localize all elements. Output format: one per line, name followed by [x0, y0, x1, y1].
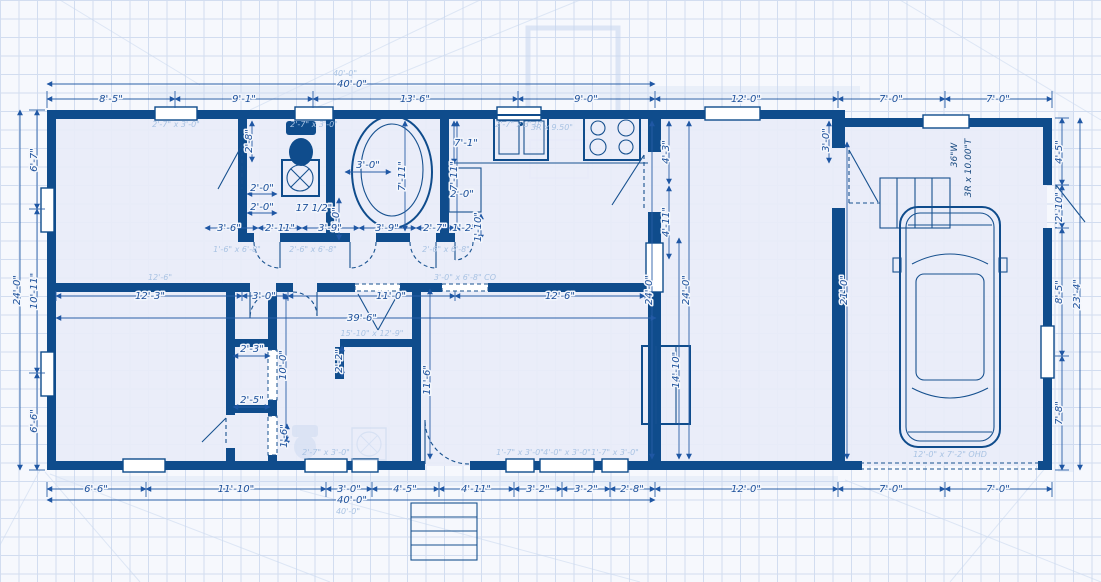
dimension-label: 17 1/2" — [296, 203, 333, 214]
dimension-label: 9'-0" — [574, 94, 598, 105]
dimension-label: 4'-5" — [393, 484, 417, 495]
ghost-room-outline — [528, 28, 618, 116]
window — [540, 459, 594, 472]
dimension-label: 3'-0" — [356, 160, 380, 171]
dimension-label: 10'-0" — [278, 350, 289, 380]
dimension-label: 23'-4" — [1072, 279, 1083, 309]
ghost-wall-band — [56, 476, 838, 486]
dimension-label: 7'-1" — [454, 138, 478, 149]
garage-floor — [837, 122, 1047, 466]
dimension-label: 3'-6" — [217, 223, 241, 234]
dimension-label: 24'-0" — [12, 275, 23, 305]
window — [295, 107, 333, 120]
dimension-label: 2'-8" — [620, 484, 644, 495]
ghost-label: 2'-7" x 3'-0" — [302, 448, 350, 457]
dimension-label: 7'-11" — [449, 161, 460, 191]
dimension-label: 7'-11" — [397, 161, 408, 191]
window — [41, 188, 54, 232]
window — [923, 115, 969, 128]
dimension-label: 3'-2" — [574, 484, 598, 495]
dimension-label: 4'-3" — [661, 140, 672, 164]
dimension-label: 13'-6" — [400, 94, 430, 105]
ghost-label: 3R x 9.50" — [531, 123, 573, 132]
closet-door-opening — [268, 416, 277, 455]
dimension-label: 3'-9" — [375, 223, 399, 234]
dimension-label: 24'-0" — [644, 275, 655, 305]
window — [506, 459, 534, 472]
dimension-label: 14'-10" — [671, 352, 682, 388]
ghost-label: 1'-6" x 6'-8" — [213, 245, 261, 254]
dimension-label: 12'-0" — [731, 94, 761, 105]
dimension-label: 1'-6" — [279, 424, 290, 448]
ghost-label: 3'-0" x 6'-8" CO — [434, 273, 496, 282]
ghost-label: 2'-7" x 3'-0" — [290, 120, 338, 129]
window — [123, 459, 165, 472]
dimension-label: 2'-7" — [423, 223, 447, 234]
dimension-label: 2'-5" — [240, 395, 264, 406]
dimension-label: 3'-2" — [526, 484, 550, 495]
dimension-label: 1'-10" — [473, 212, 484, 242]
dimension-label: 8'-5" — [1054, 280, 1065, 304]
dimension-label: 6'-6" — [84, 484, 108, 495]
cased-opening — [355, 284, 400, 291]
dimension-label: 3'-0" — [821, 128, 832, 152]
dimension-label: 3'-0" — [337, 484, 361, 495]
ghost-label: 15'-10" x 12'-9" — [341, 329, 404, 338]
floor-plan-drawing: 40'-0"8'-5"9'-1"13'-6"9'-0"12'-0"7'-0"7'… — [0, 0, 1101, 582]
dimension-label: 6'-6" — [29, 409, 40, 433]
ghost-label: 40'-0" — [333, 69, 357, 78]
dimension-label: 7'-0" — [879, 484, 903, 495]
dimension-label: 39'-6" — [347, 313, 377, 324]
dimension-label: 7'-0" — [879, 94, 903, 105]
dimension-label: 24'-0" — [681, 275, 692, 305]
dimension-label: 4'-11" — [661, 207, 672, 237]
ghost-label: 12'-6" — [148, 273, 172, 282]
dimension-label: 7'-0" — [986, 484, 1010, 495]
dimension-label: 40'-0" — [337, 79, 367, 90]
window — [497, 107, 541, 120]
dimension-label: 2'-0" — [250, 202, 274, 213]
window — [41, 352, 54, 396]
dimension-label: 4'-11" — [461, 484, 491, 495]
window — [1041, 326, 1054, 378]
dimension-label: 11'-6" — [422, 365, 433, 395]
dimension-label: 4'-5" — [1054, 140, 1065, 164]
window — [352, 459, 378, 472]
dimension-label: 2'-11" — [265, 223, 295, 234]
dimension-label: 21'-0" — [839, 275, 850, 305]
dimension-label: 2'-10" — [1054, 192, 1065, 222]
ghost-label: 1'-7" x 3'-0" — [591, 448, 639, 457]
dimension-label: 12'-0" — [731, 484, 761, 495]
dimension-label: 2'-2" — [334, 349, 345, 373]
closet-door-opening — [268, 350, 277, 400]
dimension-label: 3R x 10.00"T — [964, 137, 974, 197]
dimension-label: 3'-0" — [252, 291, 276, 302]
window — [155, 107, 197, 120]
dimension-label: 3'-9" — [318, 223, 342, 234]
dimension-label: 11'-10" — [218, 484, 254, 495]
ghost-label: 2'-6" x 6'-8" — [422, 245, 470, 254]
entry-steps — [411, 503, 477, 560]
dimension-label: 10'-11" — [29, 273, 40, 309]
ghost-label: 1'-7" x 3'-0" — [496, 448, 544, 457]
dimension-label: 40'-0" — [337, 495, 367, 506]
window — [705, 107, 760, 120]
dimension-label: 11'-0" — [376, 291, 406, 302]
cased-opening — [442, 284, 488, 291]
dimension-label: 9'-1" — [232, 94, 256, 105]
ghost-label: 2'-6" x 6'-8" — [289, 245, 337, 254]
ghost-label: 2'-7" x 3'-0" — [152, 120, 200, 129]
ghost-label: 40'-0" — [336, 507, 360, 516]
dimension-label: 36"W — [950, 142, 960, 168]
dimension-label: 12'-6" — [545, 291, 575, 302]
dimension-label: 2'-3" — [240, 344, 264, 355]
dimension-label: 7'-8" — [1054, 401, 1065, 425]
dimension-label: 2'-8" — [244, 129, 255, 153]
dimension-label: 7'-0" — [986, 94, 1010, 105]
dimension-label: 8'-5" — [99, 94, 123, 105]
dimension-label: 2'-0" — [250, 183, 274, 194]
dimension-label: 6'-7" — [29, 148, 40, 172]
window — [305, 459, 347, 472]
blueprint-canvas: 40'-0"8'-5"9'-1"13'-6"9'-0"12'-0"7'-0"7'… — [0, 0, 1101, 582]
dimension-label: 12'-3" — [135, 291, 165, 302]
ghost-label: 12'-0" x 7'-2" OHD — [913, 450, 987, 459]
ghost-label: 4'-0" x 3'-0" — [543, 448, 591, 457]
window — [602, 459, 628, 472]
